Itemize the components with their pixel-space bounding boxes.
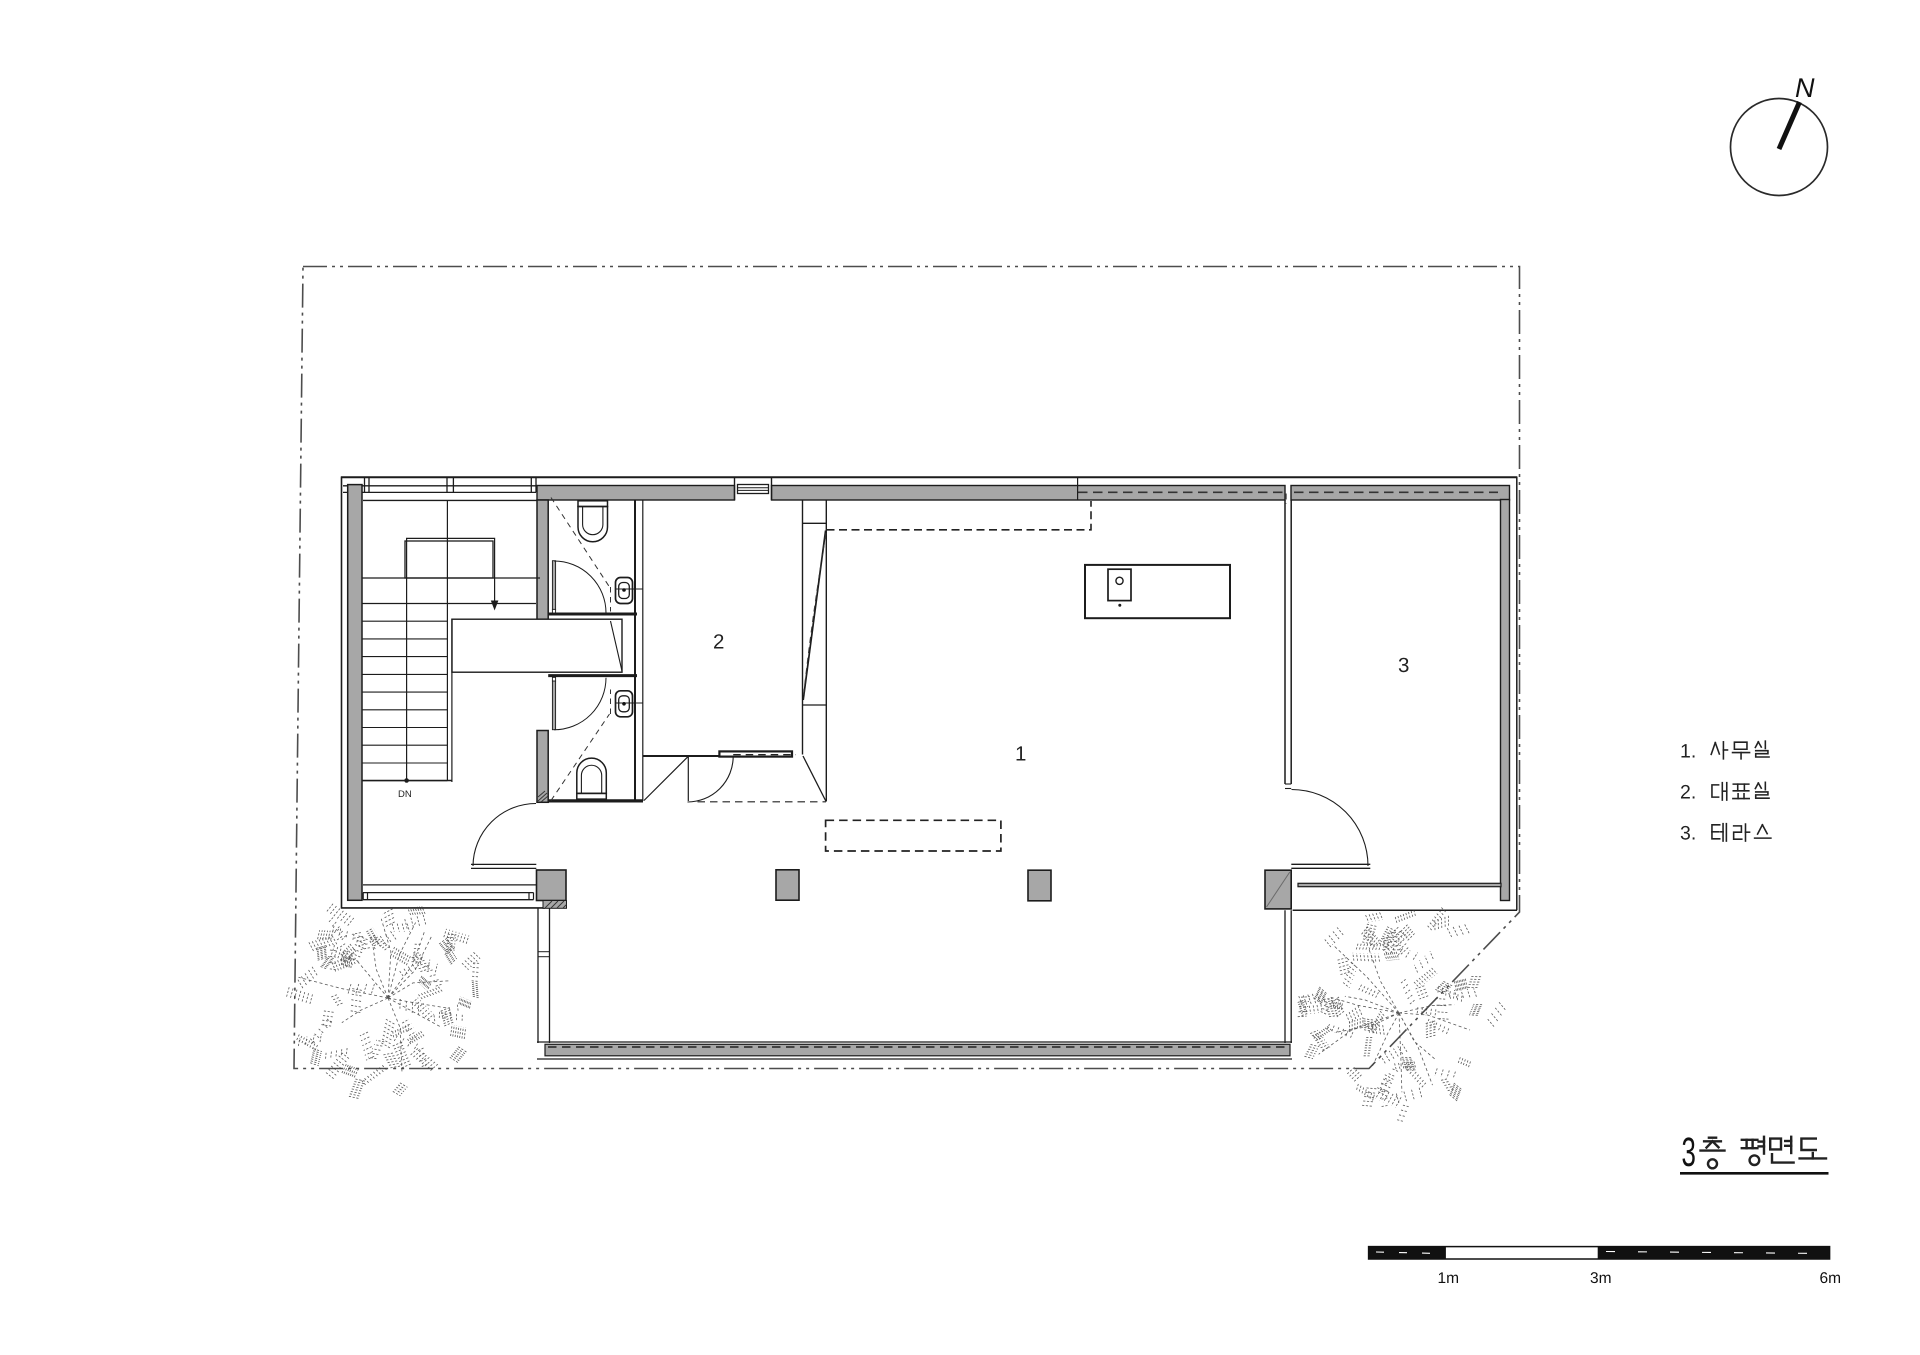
svg-text:2: 2 (713, 631, 724, 654)
svg-text:3m: 3m (1590, 1270, 1612, 1287)
svg-text:1m: 1m (1438, 1270, 1460, 1287)
svg-text:3: 3 (1398, 654, 1409, 677)
svg-text:3: 3 (1682, 1129, 1696, 1175)
svg-text:N: N (1795, 73, 1815, 103)
svg-text:6m: 6m (1820, 1270, 1842, 1287)
svg-text:3.: 3. (1680, 823, 1696, 845)
svg-text:2.: 2. (1680, 782, 1696, 804)
svg-text:1.: 1. (1680, 740, 1696, 762)
svg-text:1: 1 (1015, 743, 1026, 766)
svg-text:DN: DN (398, 789, 412, 800)
